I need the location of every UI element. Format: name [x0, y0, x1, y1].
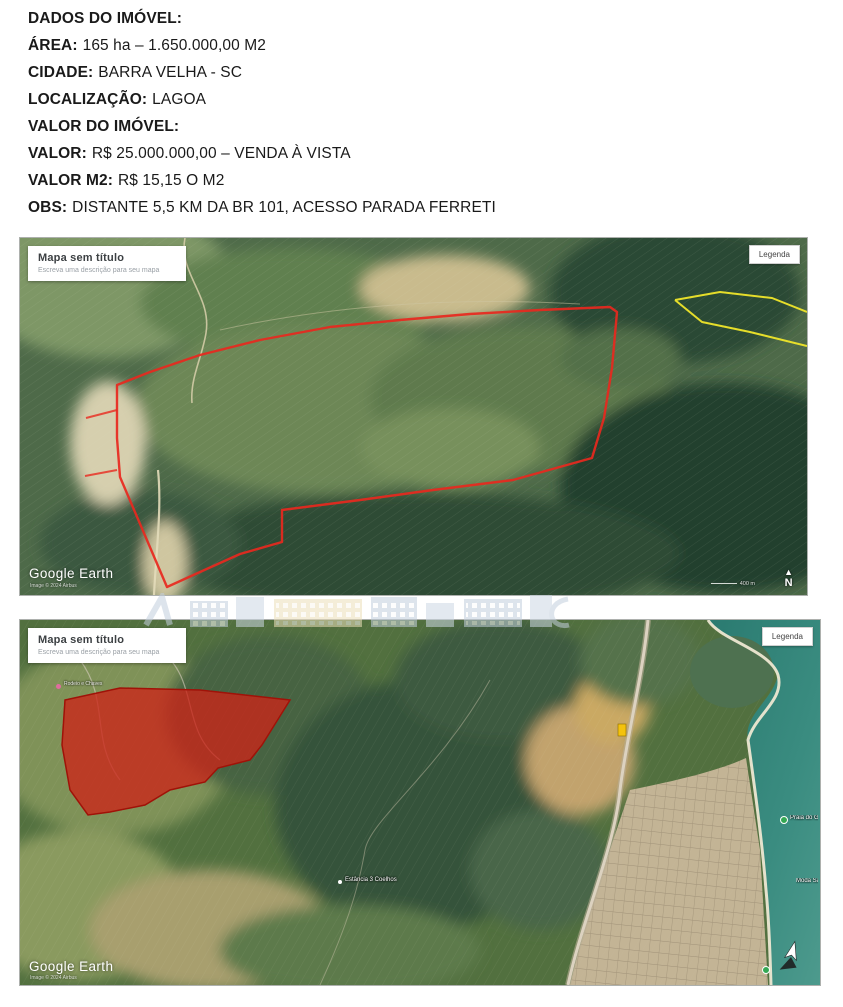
scale-label: 400 m	[740, 581, 755, 587]
detail-value: DISTANTE 5,5 KM DA BR 101, ACESSO PARADA…	[72, 199, 496, 216]
map-title: Mapa sem título	[38, 252, 176, 264]
north-label: N	[784, 577, 793, 589]
place-pin	[780, 816, 788, 824]
detail-label: ÁREA:	[28, 37, 78, 54]
detail-line-city: CIDADE:BARRA VELHA - SC	[28, 59, 496, 86]
detail-value: BARRA VELHA - SC	[98, 64, 242, 81]
detail-label: LOCALIZAÇÃO:	[28, 91, 147, 108]
place-label: Estância 3 Coelhos	[345, 877, 397, 883]
map-subtitle: Escreva uma descrição para seu mapa	[38, 267, 176, 274]
map-scale: 400 m	[711, 581, 755, 587]
detail-value: R$ 25.000.000,00 – VENDA À VISTA	[92, 145, 351, 162]
place-label: Rodeio e Chaves	[64, 681, 102, 687]
legend-button: Legenda	[762, 627, 813, 646]
map-image-bottom: Mapa sem título Escreva uma descrição pa…	[20, 620, 820, 985]
detail-label: DADOS DO IMÓVEL:	[28, 10, 182, 27]
property-details: DADOS DO IMÓVEL: ÁREA:165 ha – 1.650.000…	[28, 5, 496, 221]
map-subtitle: Escreva uma descrição para seu mapa	[38, 649, 176, 656]
map-title-card: Mapa sem título Escreva uma descrição pa…	[28, 246, 186, 281]
detail-line-heading: DADOS DO IMÓVEL:	[28, 5, 496, 32]
place-label: Praia do Grant	[790, 815, 818, 821]
detail-label: VALOR M2:	[28, 172, 113, 189]
north-arrow-icon	[778, 939, 804, 975]
detail-line-area: ÁREA:165 ha – 1.650.000,00 M2	[28, 32, 496, 59]
detail-value: 165 ha – 1.650.000,00 M2	[83, 37, 266, 54]
detail-label: OBS:	[28, 199, 67, 216]
place-pin	[56, 684, 61, 689]
road-shield-icon	[618, 724, 626, 736]
detail-line-price: VALOR:R$ 25.000.000,00 – VENDA À VISTA	[28, 140, 496, 167]
detail-label: CIDADE:	[28, 64, 93, 81]
map-title-card: Mapa sem título Escreva uma descrição pa…	[28, 628, 186, 663]
google-earth-watermark: Google Earth	[29, 959, 113, 974]
imagery-attribution: Image © 2024 Airbus	[30, 975, 77, 981]
place-label: Moda Santa	[796, 878, 818, 884]
detail-label: VALOR:	[28, 145, 87, 162]
north-arrow-glyph: ▲	[784, 568, 793, 577]
place-pin	[762, 966, 770, 974]
detail-line-price-m2: VALOR M2:R$ 15,15 O M2	[28, 167, 496, 194]
place-pin	[338, 880, 342, 884]
map-image-top: Mapa sem título Escreva uma descrição pa…	[20, 238, 807, 595]
detail-label: VALOR DO IMÓVEL:	[28, 118, 179, 135]
detail-value: LAGOA	[152, 91, 206, 108]
detail-line-location: LOCALIZAÇÃO:LAGOA	[28, 86, 496, 113]
detail-line-obs: OBS:DISTANTE 5,5 KM DA BR 101, ACESSO PA…	[28, 194, 496, 221]
detail-value: R$ 15,15 O M2	[118, 172, 224, 189]
google-earth-watermark: Google Earth	[29, 566, 113, 581]
satellite-terrain-top	[20, 238, 807, 595]
north-arrow-icon: ▲ N	[784, 568, 793, 589]
satellite-terrain-bottom	[20, 620, 820, 985]
document-page: DADOS DO IMÓVEL: ÁREA:165 ha – 1.650.000…	[0, 0, 843, 1007]
scale-bar	[711, 583, 737, 584]
detail-line-value-heading: VALOR DO IMÓVEL:	[28, 113, 496, 140]
map-title: Mapa sem título	[38, 634, 176, 646]
imagery-attribution: Image © 2024 Airbus	[30, 583, 77, 589]
legend-button: Legenda	[749, 245, 800, 264]
